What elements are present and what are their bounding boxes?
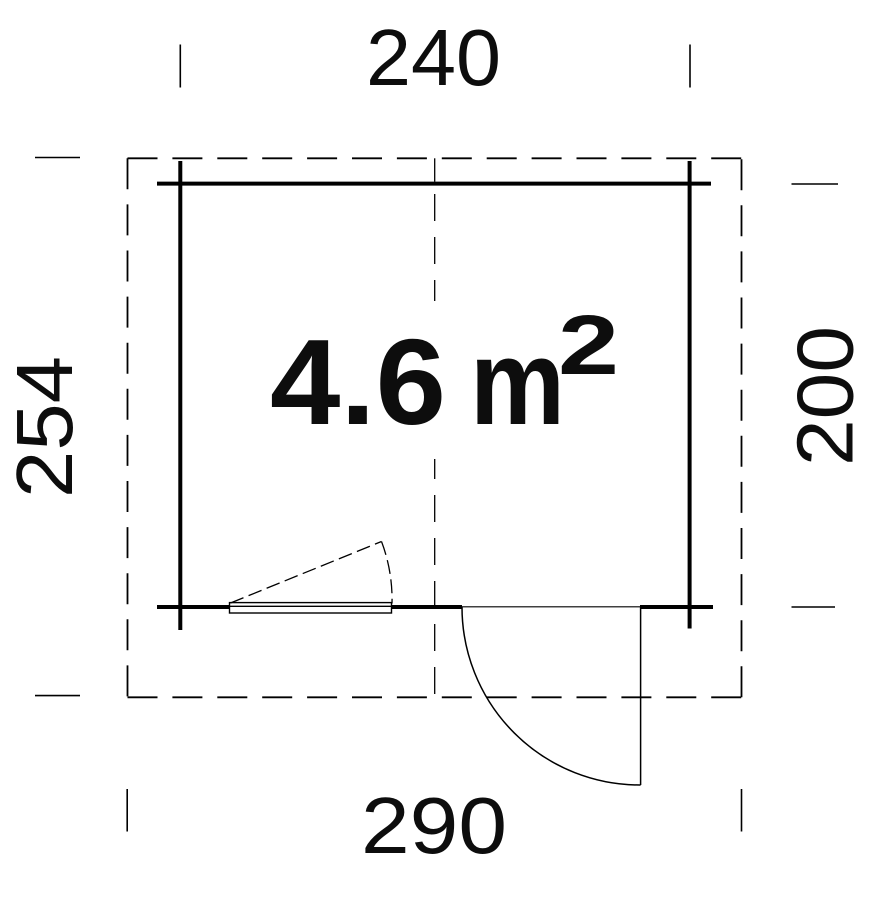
svg-text:254: 254 [0,356,89,498]
svg-text:240: 240 [366,13,501,102]
svg-text:290: 290 [361,781,507,870]
svg-text:200: 200 [781,326,870,466]
svg-text:2: 2 [558,298,619,392]
svg-text:4.6: 4.6 [270,314,446,450]
svg-text:m: m [470,314,565,450]
